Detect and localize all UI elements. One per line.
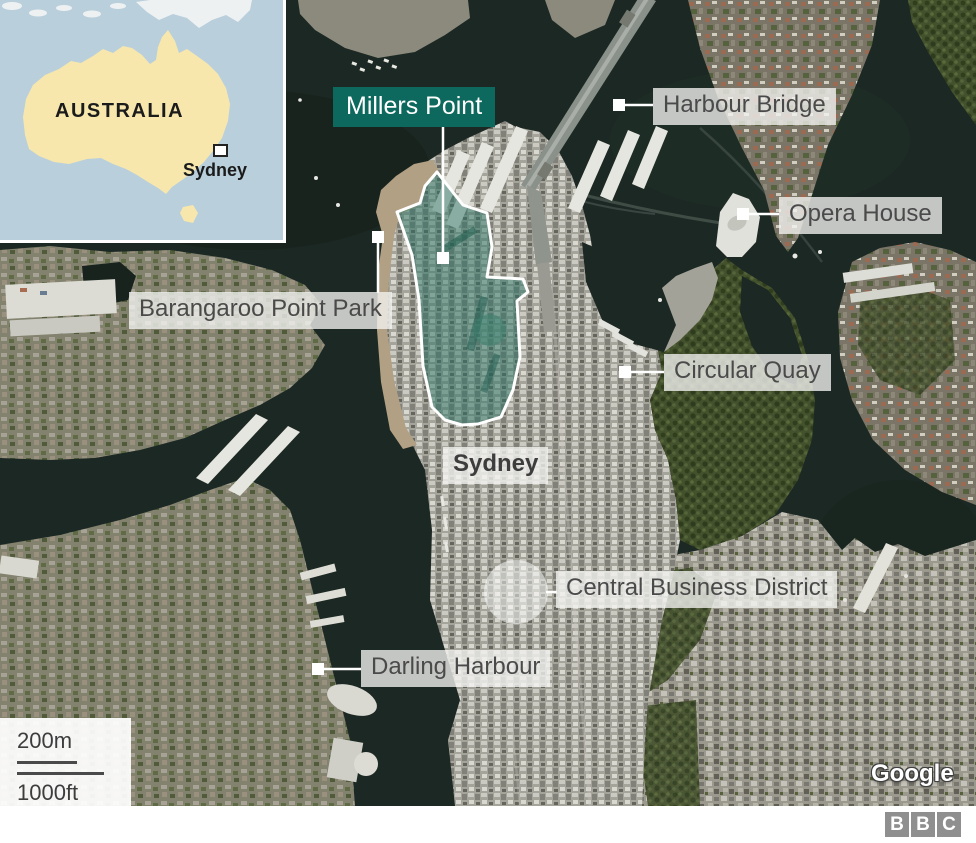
barangaroo-marker <box>372 231 384 243</box>
bbc-block-1: B <box>885 812 909 837</box>
bbc-letter: B <box>890 812 904 837</box>
sydney-label: Sydney <box>443 447 548 484</box>
cbd-highlight-circle <box>484 560 548 624</box>
scale-bar: 200m 1000ft <box>0 718 131 806</box>
google-attribution: Google <box>871 760 954 788</box>
bbc-logo: B B C <box>885 812 963 837</box>
scale-imperial-label: 1000ft <box>17 780 131 806</box>
bbc-map-graphic: Millers Point Harbour Bridge Opera House… <box>0 0 976 843</box>
bbc-block-2: B <box>911 812 935 837</box>
darling-harbour-marker <box>312 663 324 675</box>
darling-harbour-label: Darling Harbour <box>361 650 550 687</box>
millers-point-marker <box>437 252 449 264</box>
bbc-letter: B <box>916 812 930 837</box>
satellite-map: Millers Point Harbour Bridge Opera House… <box>0 0 976 806</box>
circular-quay-marker <box>619 366 631 378</box>
barangaroo-label: Barangaroo Point Park <box>129 292 392 329</box>
cbd-label: Central Business District <box>556 571 837 608</box>
opera-house-label: Opera House <box>779 197 942 234</box>
scale-metric-label: 200m <box>17 728 131 754</box>
footer: B B C <box>0 806 976 843</box>
inset-city-marker <box>214 145 227 156</box>
inset-map: AUSTRALIA Sydney <box>0 0 286 243</box>
opera-house-marker <box>737 208 749 220</box>
millers-point-label: Millers Point <box>333 87 495 127</box>
harbour-bridge-marker <box>613 99 625 111</box>
inset-country-label: AUSTRALIA <box>55 100 184 123</box>
bbc-block-3: C <box>937 812 961 837</box>
inset-city-label: Sydney <box>183 160 247 181</box>
scale-metric-line <box>17 761 77 764</box>
circular-quay-label: Circular Quay <box>664 354 831 391</box>
harbour-bridge-label: Harbour Bridge <box>653 88 836 125</box>
bbc-letter: C <box>942 812 956 837</box>
scale-imperial-line <box>17 772 104 775</box>
